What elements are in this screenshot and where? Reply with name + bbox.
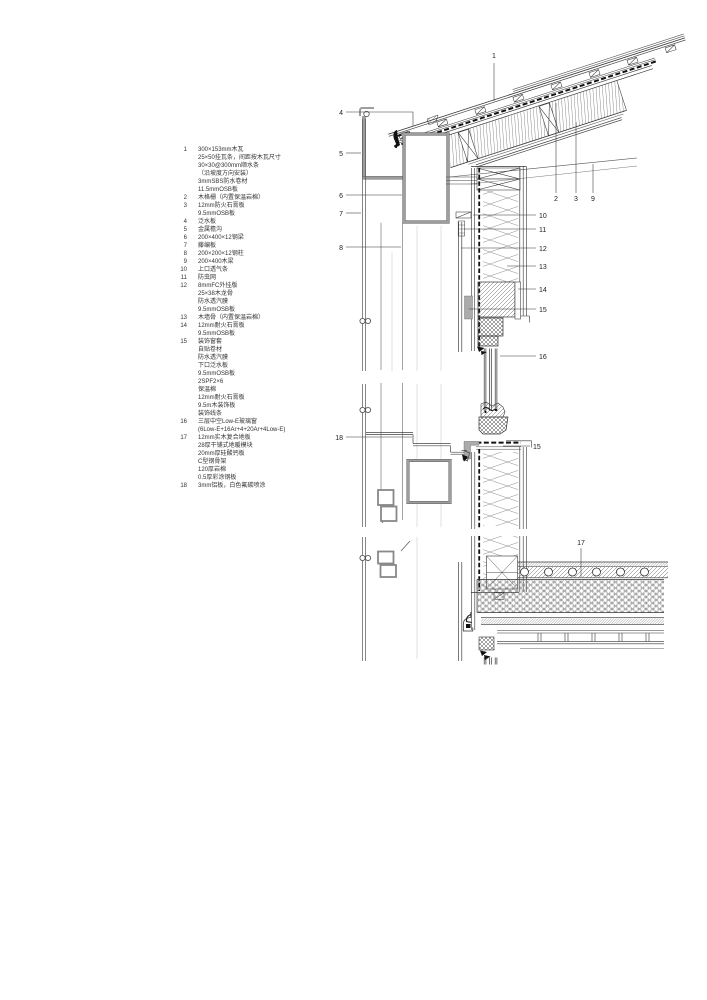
lower-window-head <box>479 637 497 665</box>
callout-15b: 15 <box>533 444 541 451</box>
wood-flooring <box>518 562 668 566</box>
steel-beam <box>403 133 450 224</box>
callout-12: 12 <box>539 246 547 253</box>
callout-15: 15 <box>539 307 547 314</box>
detail-section-drawing: 1 2 3 9 4 5 6 7 8 10 11 12 13 14 15 16 1… <box>0 0 707 1000</box>
window-glazing <box>484 349 497 412</box>
insect-screen <box>458 221 465 236</box>
aluminium-awning <box>366 433 470 521</box>
fc-cladding <box>459 222 462 352</box>
window-head <box>465 282 521 355</box>
callout-16: 16 <box>539 354 547 361</box>
callout-4: 4 <box>339 110 343 117</box>
vent-strip <box>456 212 471 218</box>
screen-battens-lower <box>378 552 396 578</box>
rattan-screen <box>360 119 371 661</box>
callout-5: 5 <box>339 151 343 158</box>
callout-14: 14 <box>539 287 547 294</box>
callout-8: 8 <box>339 245 343 252</box>
screen-battens <box>378 490 397 521</box>
callout-2: 2 <box>554 196 558 203</box>
casing-board <box>465 296 473 319</box>
callout-18: 18 <box>335 435 343 442</box>
wall-assembly-middle <box>472 447 527 529</box>
wall-insulation <box>483 191 518 282</box>
callout-9: 9 <box>591 196 595 203</box>
eave-soffit <box>446 177 477 184</box>
callout-7: 7 <box>339 211 343 218</box>
callout-1: 1 <box>492 53 496 60</box>
awning-steel-member <box>407 459 452 504</box>
rockwool-insulation <box>477 580 664 613</box>
calcium-silicate-board <box>481 618 664 624</box>
callout-17: 17 <box>577 540 585 547</box>
drawing-sheet: 1300×153mm木瓦 25×50挂瓦条，间距按木瓦尺寸 30×30@300m… <box>0 0 707 1000</box>
c-channel-frame <box>538 633 649 641</box>
callout-3: 3 <box>574 196 578 203</box>
reference-grid-lines <box>392 226 441 659</box>
callout-6: 6 <box>339 193 343 200</box>
callout-11: 11 <box>539 227 546 234</box>
callout-10: 10 <box>539 213 547 220</box>
callout-13: 13 <box>539 264 547 271</box>
